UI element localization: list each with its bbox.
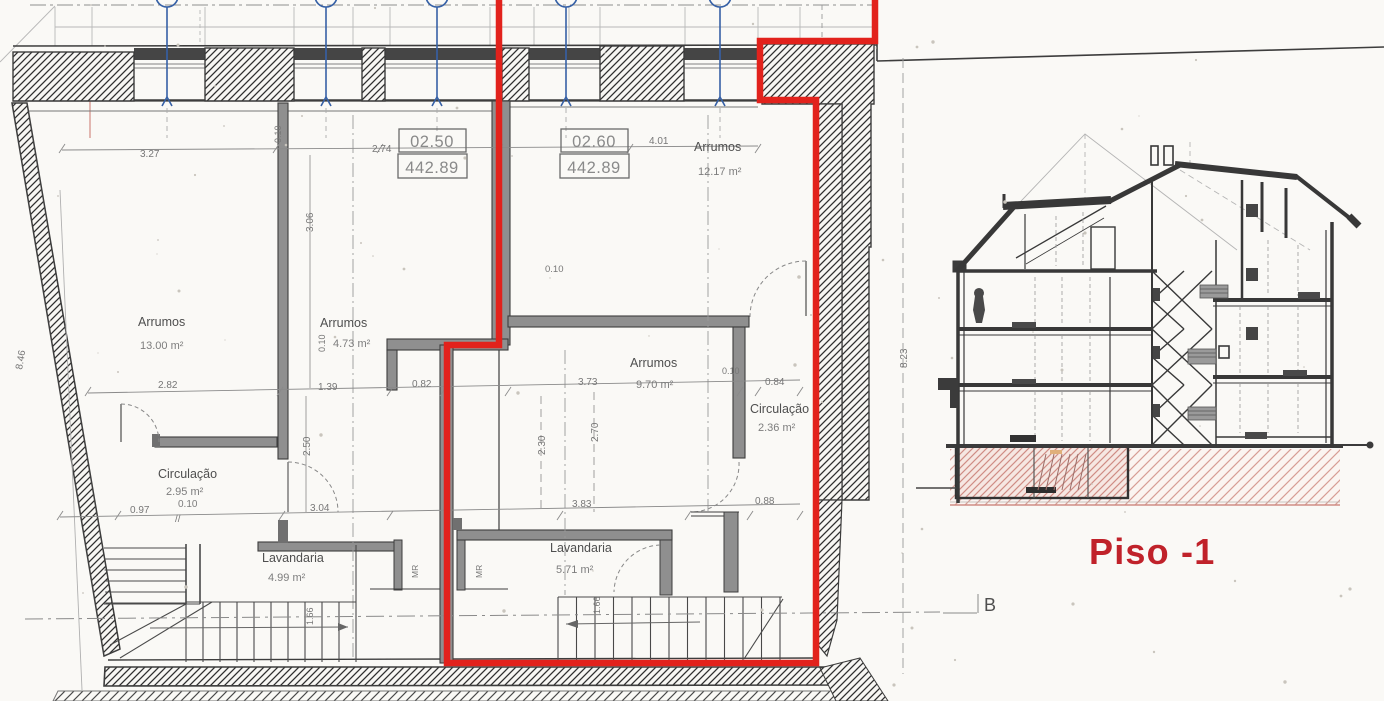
svg-text:2.70: 2.70 [590,422,601,442]
svg-text://: // [175,514,181,525]
svg-text:MR: MR [474,565,484,578]
svg-text:2.36 m²: 2.36 m² [758,422,796,434]
svg-text:Arrumos: Arrumos [320,316,367,330]
svg-text:3.27: 3.27 [140,149,160,160]
svg-text:4.73 m²: 4.73 m² [333,338,371,350]
svg-text:0.84: 0.84 [765,377,785,388]
svg-text:3.83: 3.83 [572,499,592,510]
svg-text:Arrumos: Arrumos [630,356,677,370]
svg-text:4.01: 4.01 [649,136,669,147]
svg-text:442.89: 442.89 [405,159,458,177]
svg-text:5.71 m²: 5.71 m² [556,564,594,576]
svg-text:Piso -1: Piso -1 [1089,531,1215,572]
svg-text:3.06: 3.06 [305,212,316,232]
svg-text:8.23: 8.23 [899,348,910,368]
svg-text:13.00 m²: 13.00 m² [140,340,184,352]
svg-text:442.89: 442.89 [567,159,620,177]
svg-text:Lavandaria: Lavandaria [262,551,324,565]
svg-text:Circulação: Circulação [750,402,809,416]
svg-text:02.50: 02.50 [410,133,454,151]
svg-text:Circulação: Circulação [158,467,217,481]
svg-text:12.17 m²: 12.17 m² [698,166,742,178]
svg-text:0.10: 0.10 [545,264,564,275]
svg-text:0.82: 0.82 [412,379,432,390]
svg-text:0.97: 0.97 [130,505,150,516]
svg-text:Arrumos: Arrumos [694,140,741,154]
svg-text:3.73: 3.73 [578,377,598,388]
svg-text:1.66: 1.66 [592,596,602,614]
svg-text:02.60: 02.60 [572,133,616,151]
svg-text:2.30: 2.30 [537,435,548,455]
svg-text:2.82: 2.82 [158,380,178,391]
svg-text:0.10: 0.10 [273,125,283,143]
svg-text:Arrumos: Arrumos [138,315,185,329]
svg-text:Lavandaria: Lavandaria [550,541,612,555]
svg-text:9.70 m²: 9.70 m² [636,379,674,391]
svg-text:3.04: 3.04 [310,503,330,514]
svg-text:2.50: 2.50 [302,436,313,456]
svg-text:0.10: 0.10 [722,366,740,376]
svg-text:0.10: 0.10 [178,499,198,510]
svg-text:0.10: 0.10 [317,334,327,352]
svg-text:B: B [984,595,996,615]
svg-text:MR: MR [410,565,420,578]
svg-text:2.74: 2.74 [372,144,392,155]
svg-text:0.88: 0.88 [755,496,775,507]
svg-text:4.99 m²: 4.99 m² [268,572,306,584]
svg-text:1.66: 1.66 [305,607,315,625]
svg-text:1.39: 1.39 [318,382,338,393]
svg-text:2.95 m²: 2.95 m² [166,486,204,498]
